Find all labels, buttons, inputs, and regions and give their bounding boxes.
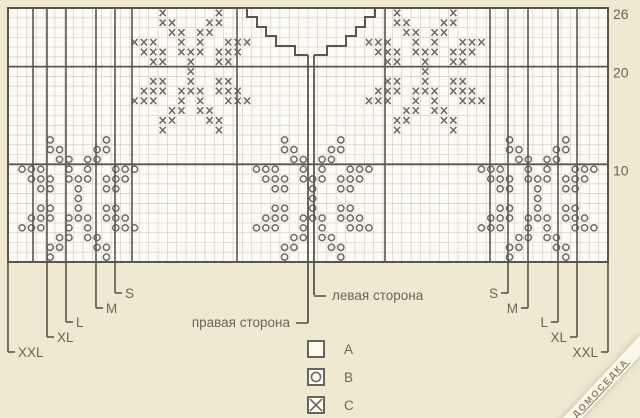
legend: ABC: [308, 341, 354, 413]
legend-label-C: C: [344, 398, 354, 413]
size-label-left-XXL: XXL: [18, 345, 44, 360]
legend-label-B: B: [344, 370, 353, 385]
size-label-right-XL: XL: [550, 330, 567, 345]
size-label-right-L: L: [540, 315, 548, 330]
legend-symbol-empty-square: [308, 341, 324, 357]
size-label-right-M: M: [507, 301, 518, 316]
size-label-right-S: S: [489, 286, 498, 301]
row-numbers: 262010: [613, 6, 629, 178]
size-label-left-S: S: [125, 286, 134, 301]
row-number-26: 26: [613, 6, 629, 22]
size-label-left-M: M: [106, 301, 117, 316]
knitting-pattern-scan: XXLXLLMSSMLXLXXLправая стороналевая стор…: [0, 0, 640, 418]
row-number-10: 10: [613, 162, 629, 178]
knitting-chart-svg: XXLXLLMSSMLXLXXLправая стороналевая стор…: [0, 0, 640, 418]
size-label-left-XL: XL: [57, 330, 74, 345]
legend-symbol-circle-square: [308, 369, 324, 385]
left-side-of-garment-label: левая сторона: [332, 288, 424, 303]
right-side-of-garment-label: правая сторона: [192, 315, 291, 330]
size-label-right-XXL: XXL: [572, 345, 598, 360]
legend-label-A: A: [344, 342, 353, 357]
size-label-left-L: L: [76, 315, 84, 330]
row-number-20: 20: [613, 65, 629, 81]
